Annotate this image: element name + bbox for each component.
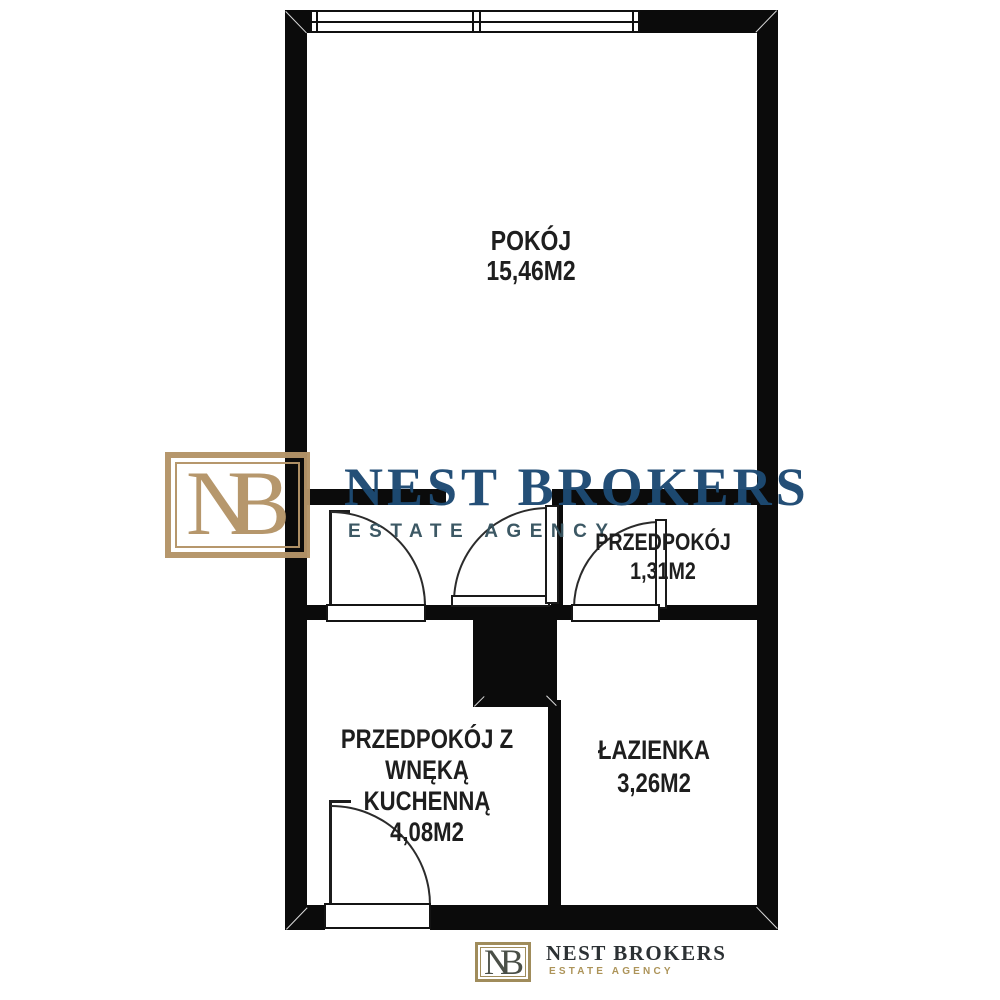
footer-monogram-letter-b: B <box>500 941 524 983</box>
room-area-kuchnia: 4,08M2 <box>304 817 550 848</box>
room-label-pokoj: POKÓJ 15,46M2 <box>429 226 634 286</box>
room-name-lazienka: ŁAZIENKA <box>572 734 736 767</box>
floor-plan-canvas: POKÓJ 15,46M2 PRZEDPOKÓJ 1,31M2 PRZEDPOK… <box>0 0 1000 1000</box>
nest-brokers-logo-footer: N B NEST BROKERS ESTATE AGENCY <box>0 0 1000 1000</box>
room-label-przedpokoj-kuchnia: PRZEDPOKÓJ Z WNĘKĄ KUCHENNĄ 4,08M2 <box>304 724 550 848</box>
footer-brand-name-text: NEST BROKERS <box>546 941 726 966</box>
room-area-pokoj: 15,46M2 <box>429 256 634 286</box>
room-name-przedpokoj: PRZEDPOKÓJ <box>581 528 745 557</box>
room-name-pokoj: POKÓJ <box>429 226 634 256</box>
room-area-przedpokoj: 1,31M2 <box>581 557 745 586</box>
room-name-kuchnia-line2: KUCHENNĄ <box>304 786 550 817</box>
room-name-kuchnia-line1: PRZEDPOKÓJ Z WNĘKĄ <box>304 724 550 786</box>
footer-monogram-frame: N B <box>475 942 531 982</box>
footer-brand-tagline-text: ESTATE AGENCY <box>549 966 674 977</box>
room-label-przedpokoj: PRZEDPOKÓJ 1,31M2 <box>581 528 745 586</box>
room-area-lazienka: 3,26M2 <box>572 767 736 800</box>
room-label-lazienka: ŁAZIENKA 3,26M2 <box>572 734 736 800</box>
